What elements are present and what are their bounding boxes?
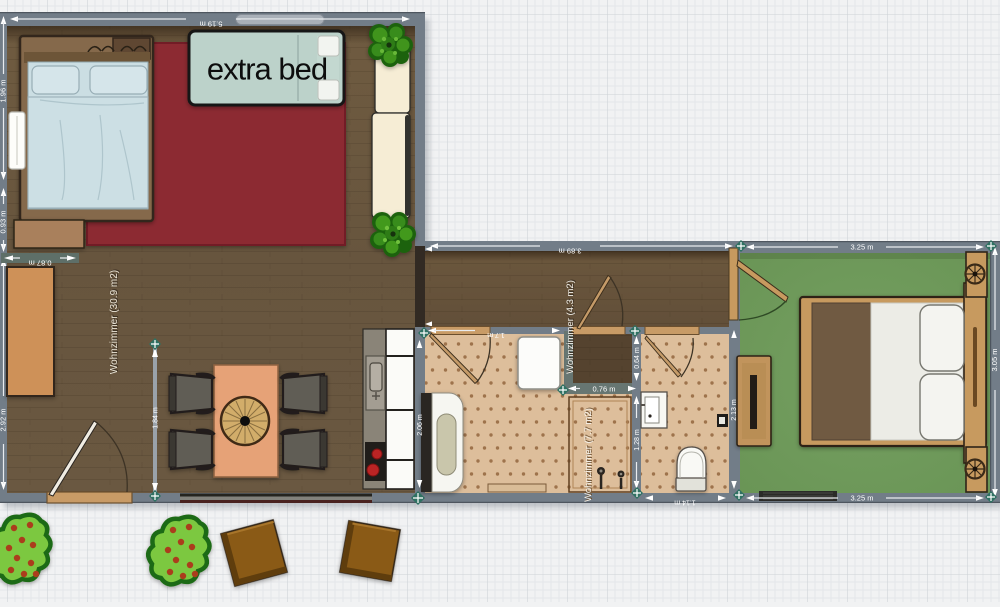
svg-text:5.19 m: 5.19 m (200, 20, 223, 29)
svg-text:1.28 m: 1.28 m (634, 429, 641, 451)
svg-text:3.89 m: 3.89 m (559, 247, 582, 256)
svg-text:extra bed: extra bed (207, 52, 327, 87)
svg-text:Wohnzimmer (4.3 m2): Wohnzimmer (4.3 m2) (565, 280, 576, 374)
svg-text:0.93 m: 0.93 m (0, 211, 8, 234)
svg-text:1.96 m: 1.96 m (0, 80, 8, 103)
svg-text:1.84 m: 1.84 m (153, 407, 160, 429)
svg-text:Wohnzimmer (7.7 m2): Wohnzimmer (7.7 m2) (583, 408, 594, 502)
svg-text:2.06 m: 2.06 m (417, 414, 424, 436)
svg-text:1.14 m: 1.14 m (674, 499, 696, 506)
svg-text:0.64 m: 0.64 m (634, 347, 641, 369)
svg-text:0.76 m: 0.76 m (593, 385, 616, 394)
svg-text:2.13 m: 2.13 m (731, 399, 738, 421)
svg-text:3.25 m: 3.25 m (851, 243, 874, 252)
svg-text:Wohnzimmer (30.9 m2): Wohnzimmer (30.9 m2) (109, 270, 120, 374)
svg-text:2.92 m: 2.92 m (0, 409, 8, 432)
svg-text:3.25 m: 3.25 m (851, 494, 874, 503)
svg-text:0.87 m: 0.87 m (29, 259, 52, 268)
svg-text:1.7 m: 1.7 m (487, 331, 505, 338)
svg-text:3.05 m: 3.05 m (990, 349, 999, 372)
